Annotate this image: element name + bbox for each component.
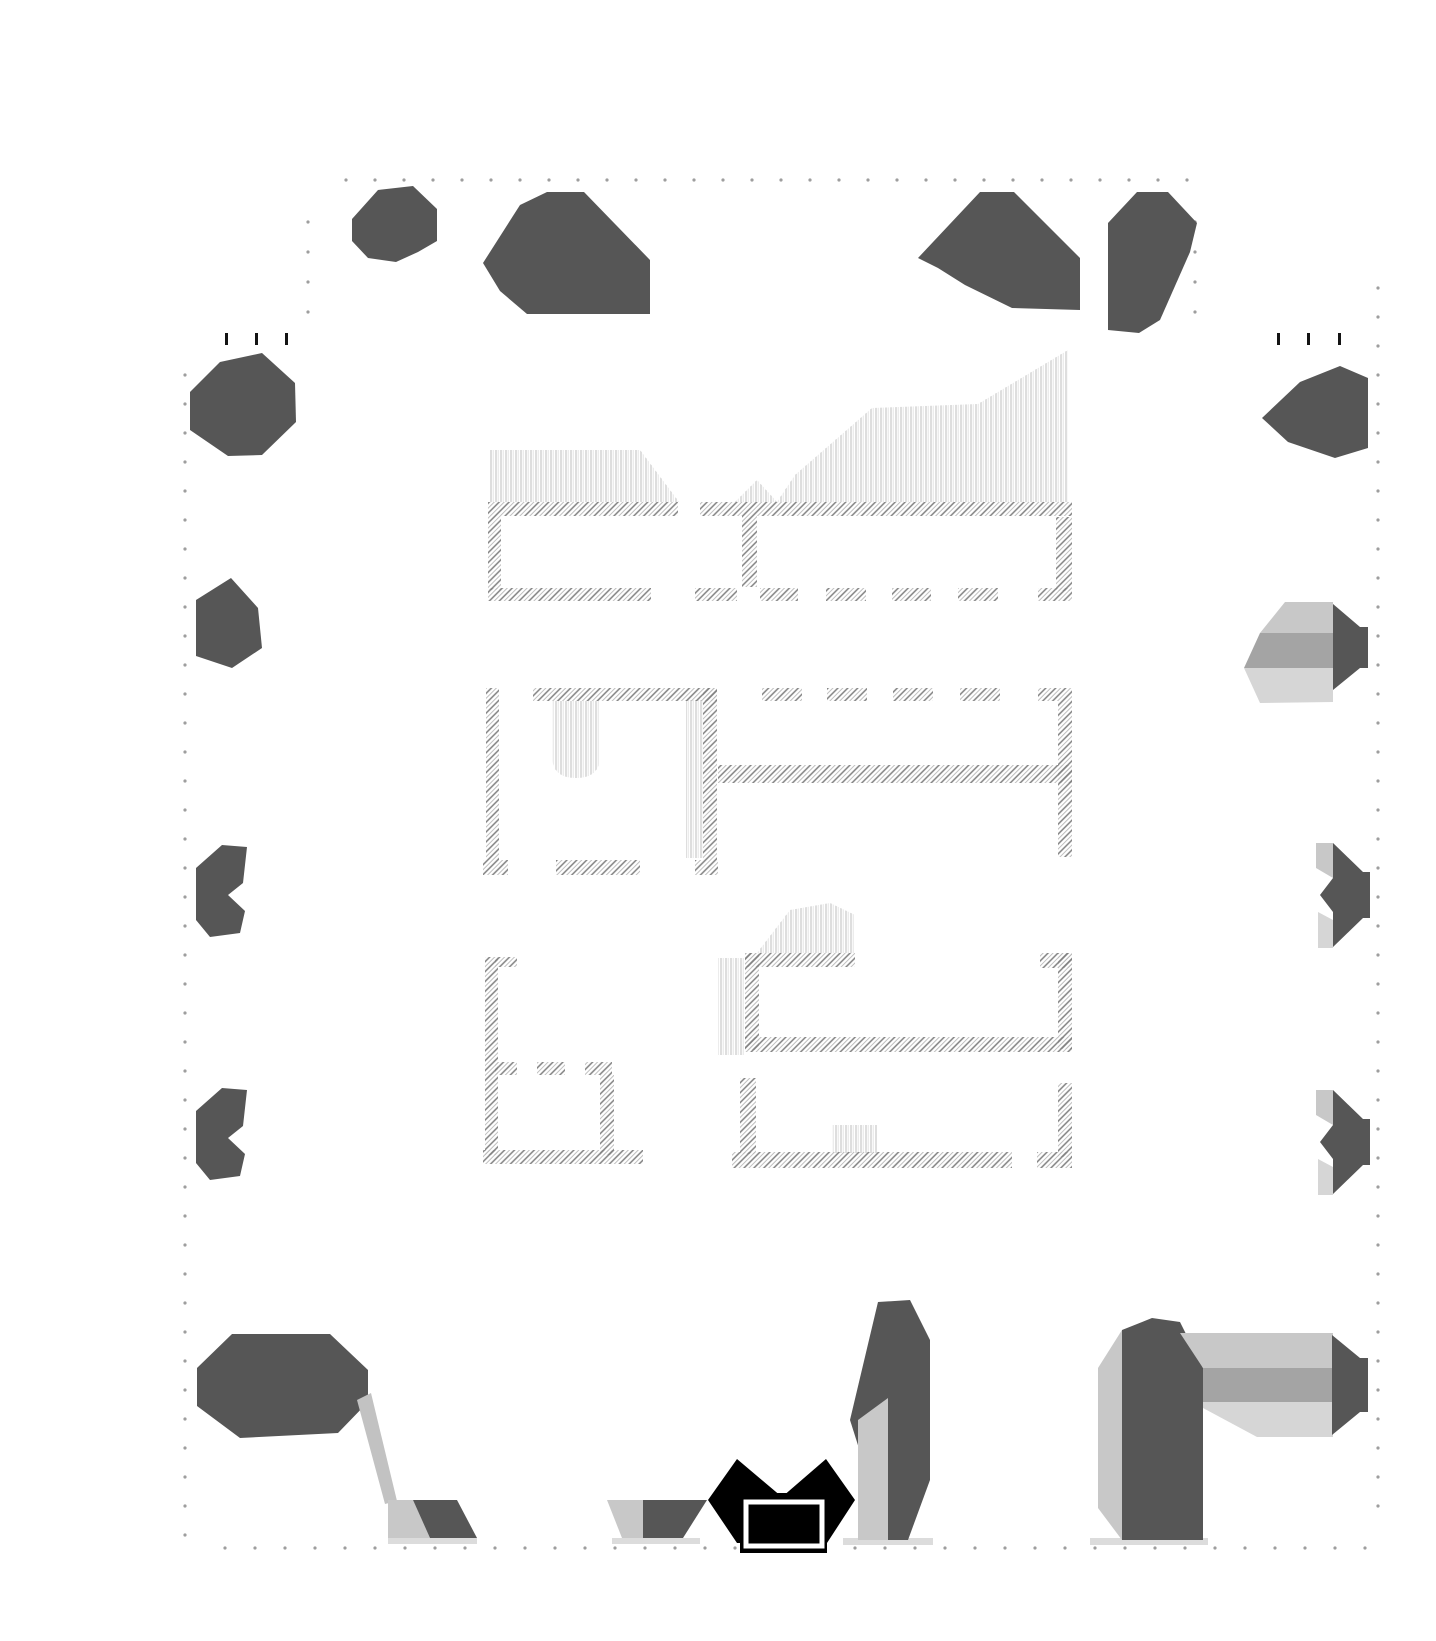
wall-b3-center-bot-vert	[740, 1078, 756, 1154]
boundary-right-dot	[1376, 1417, 1379, 1420]
tree-br-light-facet	[1098, 1330, 1122, 1540]
wall-b2-bottom-2	[556, 860, 640, 875]
boundary-top-dot	[344, 178, 347, 181]
tree-bm-small-feet	[612, 1538, 700, 1544]
boundary-right-dot	[1376, 982, 1379, 985]
wall-b1-dash-1	[695, 588, 737, 601]
boundary-bottom-dot	[493, 1546, 496, 1549]
wall-b3-left-bottom	[483, 1150, 643, 1164]
boundary-right-dot	[1376, 1040, 1379, 1043]
wall-b2-bottom-3	[695, 860, 718, 875]
tree-bottom-left-octagon	[197, 1334, 368, 1438]
boundary-left-dot	[183, 895, 186, 898]
boundary-left-dot	[183, 1504, 186, 1507]
boundary-top-dot	[373, 178, 376, 181]
boundary-left-dot	[183, 1330, 186, 1333]
tree-right-notch-1-light-bottom	[1318, 912, 1333, 948]
boundary-left-dot	[183, 373, 186, 376]
wall-b1-left-side	[488, 516, 501, 590]
boundary-left-dot	[183, 1243, 186, 1246]
floor-plan-svg	[0, 0, 1436, 1641]
boundary-bottom-dot	[403, 1546, 406, 1549]
boundary-right-dot	[1376, 866, 1379, 869]
hedge-bottom-band-bottom	[1203, 1402, 1333, 1437]
boundary-right-dot	[1376, 1127, 1379, 1130]
boundary-top-dot	[1098, 178, 1101, 181]
tree-right-upper	[1262, 366, 1368, 458]
hedge-bottom-arrow	[1332, 1335, 1368, 1435]
boundary-bottom-dot	[853, 1546, 856, 1549]
wall-b2-left-top	[533, 688, 717, 701]
boundary-bottom-dot	[373, 1546, 376, 1549]
boundary-left-dot	[183, 779, 186, 782]
boundary-top-dot	[663, 178, 666, 181]
wall-b1-dash-3	[826, 588, 866, 601]
boundary-bottom-dot	[463, 1546, 466, 1549]
boundary-top-dot	[547, 178, 550, 181]
boundary-bottom-dot	[643, 1546, 646, 1549]
boundary-right-dot	[1376, 1475, 1379, 1478]
tree-left-upper	[190, 353, 296, 456]
boundary-top-dot	[1185, 178, 1188, 181]
shadow-b3-column	[718, 958, 745, 1055]
shadow-b1-right	[735, 350, 1068, 502]
boundary-right-dot	[1376, 1301, 1379, 1304]
shadow-b2-column	[686, 700, 703, 858]
boundary-top-dot	[924, 178, 927, 181]
boundary-left-dot	[183, 1359, 186, 1362]
boundary-bottom-dot	[613, 1546, 616, 1549]
boundary-right-dot	[1376, 431, 1379, 434]
boundary-left-dot	[183, 1417, 186, 1420]
boundary-left-dot	[183, 1214, 186, 1217]
tree-bl-small-feet	[388, 1538, 477, 1544]
boundary-bottom-dot	[1093, 1546, 1096, 1549]
boundary-right-dot	[1376, 373, 1379, 376]
boundary-left-dot	[183, 634, 186, 637]
path-ribbon	[357, 1393, 397, 1504]
boundary-bottom-dot	[1303, 1546, 1306, 1549]
boundary-bottom-dot	[223, 1546, 226, 1549]
tree-right-notch-1-light-top	[1316, 843, 1333, 878]
boundary-top-dot	[1156, 178, 1159, 181]
boundary-right-dot	[1376, 1214, 1379, 1217]
boundary-left-dot	[183, 1272, 186, 1275]
boundary-right-dot	[1376, 895, 1379, 898]
wall-b2-center	[703, 688, 717, 860]
boundary-right-dot	[1376, 1069, 1379, 1072]
boundary-right-dot	[1376, 547, 1379, 550]
shadow-b3-top	[757, 903, 855, 953]
boundary-top-dot	[576, 178, 579, 181]
boundary-inner-right-dot	[1193, 280, 1196, 283]
wall-b2-mid-horizontal	[718, 765, 1072, 783]
boundary-left-dot	[183, 866, 186, 869]
shadow-b1-left	[490, 450, 679, 502]
boundary-right-dot	[1376, 634, 1379, 637]
boundary-inner-left-dot	[306, 250, 309, 253]
boundary-right-dot	[1376, 953, 1379, 956]
boundary-top-dot	[895, 178, 898, 181]
survey-tick	[285, 333, 288, 345]
wall-b3-dash-1	[495, 1062, 517, 1075]
boundary-top-dot	[982, 178, 985, 181]
wall-b2-dash-4	[960, 688, 1000, 701]
boundary-right-dot	[1376, 315, 1379, 318]
boundary-left-dot	[183, 547, 186, 550]
tree-left-notch-1	[196, 845, 247, 937]
boundary-bottom-dot	[523, 1546, 526, 1549]
boundary-top-dot	[1127, 178, 1130, 181]
wall-b1-left-bottom	[488, 588, 651, 601]
wall-b3-dash-2	[537, 1062, 565, 1075]
boundary-right-dot	[1376, 1272, 1379, 1275]
boundary-inner-right-dot	[1193, 310, 1196, 313]
boundary-left-dot	[183, 1127, 186, 1130]
wall-b3-inner-vert	[600, 1075, 614, 1155]
boundary-top-dot	[431, 178, 434, 181]
boundary-left-dot	[183, 1446, 186, 1449]
boundary-bottom-dot	[703, 1546, 706, 1549]
wall-b3-left-stub	[495, 957, 517, 967]
survey-tick	[1277, 333, 1280, 345]
tree-top-left-large	[483, 192, 650, 314]
tree-left-mid	[196, 578, 262, 668]
boundary-right-dot	[1376, 837, 1379, 840]
boundary-right-dot	[1376, 1011, 1379, 1014]
boundary-right-dot	[1376, 344, 1379, 347]
boundary-bottom-dot	[433, 1546, 436, 1549]
boundary-top-dot	[779, 178, 782, 181]
wall-b2-dash-1	[762, 688, 802, 701]
boundary-left-dot	[183, 982, 186, 985]
boundary-bottom-dot	[1213, 1546, 1216, 1549]
wall-b2-dash-2	[827, 688, 867, 701]
boundary-bottom-dot	[913, 1546, 916, 1549]
wall-b1-right-top	[700, 502, 1072, 516]
boundary-inner-left-dot	[306, 280, 309, 283]
wall-b3-right-bot-vert	[1058, 1083, 1072, 1157]
boundary-right-dot	[1376, 460, 1379, 463]
viewpoint-marker-screen[interactable]	[746, 1502, 822, 1546]
wall-b1-center-stub	[742, 516, 757, 587]
wall-b2-dash-3	[893, 688, 933, 701]
wall-b3-dash-3	[585, 1062, 612, 1075]
boundary-right-dot	[1376, 663, 1379, 666]
boundary-left-dot	[183, 1388, 186, 1391]
boundary-top-dot	[1040, 178, 1043, 181]
boundary-right-dot	[1376, 779, 1379, 782]
boundary-right-dot	[1376, 1504, 1379, 1507]
boundary-left-dot	[183, 431, 186, 434]
wall-b1-dash-5	[958, 588, 998, 601]
boundary-left-dot	[183, 1533, 186, 1536]
boundary-right-dot	[1376, 1243, 1379, 1246]
wall-b1-dash-4	[892, 588, 931, 601]
boundary-bottom-dot	[313, 1546, 316, 1549]
boundary-bottom-dot	[1363, 1546, 1366, 1549]
boundary-bottom-dot	[673, 1546, 676, 1549]
tree-top-right-a	[918, 192, 1080, 310]
shadow-b3-small	[832, 1125, 877, 1153]
hedge-right-band-bottom	[1244, 668, 1333, 703]
hedge-right-band-top	[1260, 602, 1333, 633]
boundary-right-dot	[1376, 605, 1379, 608]
hedge-bottom-band-mid	[1203, 1368, 1333, 1402]
boundary-left-dot	[183, 460, 186, 463]
wall-b2-bottom-1	[483, 860, 508, 875]
boundary-bottom-dot	[553, 1546, 556, 1549]
boundary-top-dot	[489, 178, 492, 181]
tree-top-right-b	[1108, 192, 1197, 333]
wall-b3-bottom-long	[732, 1152, 1012, 1168]
wall-b3-right-top-vert	[1058, 953, 1072, 1049]
wall-b2-corner-tr	[1038, 688, 1072, 701]
boundary-top-dot	[750, 178, 753, 181]
boundary-left-dot	[183, 1098, 186, 1101]
boundary-top-dot	[692, 178, 695, 181]
wall-b2-right-side	[1058, 701, 1072, 857]
boundary-bottom-dot	[343, 1546, 346, 1549]
boundary-left-dot	[183, 808, 186, 811]
tree-top-left-small	[352, 186, 437, 262]
boundary-bottom-dot	[1003, 1546, 1006, 1549]
boundary-right-dot	[1376, 721, 1379, 724]
boundary-bottom-dot	[1183, 1546, 1186, 1549]
wall-b3-right-top	[745, 953, 855, 967]
boundary-top-dot	[808, 178, 811, 181]
boundary-right-dot	[1376, 1359, 1379, 1362]
site-plan	[0, 0, 1436, 1641]
wall-b1-left-top	[488, 502, 678, 516]
survey-tick	[1338, 333, 1341, 345]
boundary-left-dot	[183, 721, 186, 724]
boundary-left-dot	[183, 837, 186, 840]
boundary-left-dot	[183, 1185, 186, 1188]
boundary-bottom-dot	[583, 1546, 586, 1549]
tree-bm-small-dark	[643, 1500, 707, 1538]
boundary-right-dot	[1376, 1185, 1379, 1188]
survey-tick	[1307, 333, 1310, 345]
boundary-inner-left-dot	[306, 310, 309, 313]
boundary-bottom-dot	[283, 1546, 286, 1549]
boundary-bottom-dot	[1153, 1546, 1156, 1549]
tree-right-notch-2-light-top	[1316, 1090, 1333, 1125]
boundary-bottom-dot	[943, 1546, 946, 1549]
boundary-left-dot	[183, 518, 186, 521]
boundary-right-dot	[1376, 692, 1379, 695]
boundary-left-dot	[183, 489, 186, 492]
boundary-bottom-dot	[1273, 1546, 1276, 1549]
boundary-left-dot	[183, 1156, 186, 1159]
boundary-left-dot	[183, 924, 186, 927]
survey-tick	[255, 333, 258, 345]
boundary-top-dot	[402, 178, 405, 181]
boundary-left-dot	[183, 1011, 186, 1014]
boundary-right-dot	[1376, 402, 1379, 405]
boundary-bottom-dot	[883, 1546, 886, 1549]
tree-right-notch-2-light-bottom	[1318, 1159, 1333, 1195]
wall-b3-long-horizontal	[745, 1037, 1072, 1052]
boundary-top-dot	[837, 178, 840, 181]
tree-mid-tall-light	[858, 1398, 888, 1540]
boundary-right-dot	[1376, 750, 1379, 753]
boundary-left-dot	[183, 1301, 186, 1304]
boundary-right-dot	[1376, 489, 1379, 492]
wall-b1-corner-br	[1038, 588, 1072, 601]
boundary-top-dot	[721, 178, 724, 181]
boundary-left-dot	[183, 1040, 186, 1043]
boundary-bottom-dot	[253, 1546, 256, 1549]
boundary-right-dot	[1376, 924, 1379, 927]
boundary-bottom-dot	[1243, 1546, 1246, 1549]
boundary-right-dot	[1376, 1098, 1379, 1101]
wall-b3-center-top-vert	[745, 953, 759, 1050]
boundary-top-dot	[1069, 178, 1072, 181]
boundary-left-dot	[183, 953, 186, 956]
tree-bm-small-light	[607, 1500, 643, 1538]
boundary-inner-left-dot	[306, 220, 309, 223]
boundary-left-dot	[183, 402, 186, 405]
boundary-right-dot	[1376, 1330, 1379, 1333]
wall-b3-left-side	[485, 957, 498, 1155]
boundary-right-dot	[1376, 1446, 1379, 1449]
boundary-bottom-dot	[1333, 1546, 1336, 1549]
tree-br-dark-body	[1122, 1318, 1203, 1540]
boundary-left-dot	[183, 576, 186, 579]
boundary-right-dot	[1376, 1388, 1379, 1391]
boundary-right-dot	[1376, 808, 1379, 811]
boundary-bottom-dot	[973, 1546, 976, 1549]
wall-b2-left-side	[486, 688, 499, 860]
boundary-bottom-dot	[1123, 1546, 1126, 1549]
boundary-left-dot	[183, 1069, 186, 1072]
boundary-right-dot	[1376, 576, 1379, 579]
wall-b1-right-side	[1056, 517, 1072, 591]
boundary-right-dot	[1376, 518, 1379, 521]
boundary-top-dot	[518, 178, 521, 181]
boundary-right-dot	[1376, 286, 1379, 289]
boundary-left-dot	[183, 692, 186, 695]
hedge-right-band-mid	[1244, 633, 1333, 668]
survey-tick	[225, 333, 228, 345]
boundary-right-dot	[1376, 1156, 1379, 1159]
boundary-inner-right-dot	[1193, 250, 1196, 253]
boundary-top-dot	[953, 178, 956, 181]
boundary-left-dot	[183, 750, 186, 753]
tree-left-notch-2	[196, 1088, 247, 1180]
boundary-top-dot	[605, 178, 608, 181]
wall-b1-dash-2	[760, 588, 798, 601]
boundary-top-dot	[1011, 178, 1014, 181]
hedge-right-arrow	[1333, 604, 1368, 690]
shadow-curtain	[552, 701, 600, 778]
hedge-bottom-band-top	[1180, 1333, 1333, 1368]
boundary-bottom-dot	[733, 1546, 736, 1549]
boundary-left-dot	[183, 1475, 186, 1478]
boundary-bottom-dot	[1033, 1546, 1036, 1549]
boundary-top-dot	[460, 178, 463, 181]
boundary-bottom-dot	[1063, 1546, 1066, 1549]
boundary-top-dot	[634, 178, 637, 181]
boundary-left-dot	[183, 605, 186, 608]
boundary-left-dot	[183, 663, 186, 666]
boundary-top-dot	[866, 178, 869, 181]
